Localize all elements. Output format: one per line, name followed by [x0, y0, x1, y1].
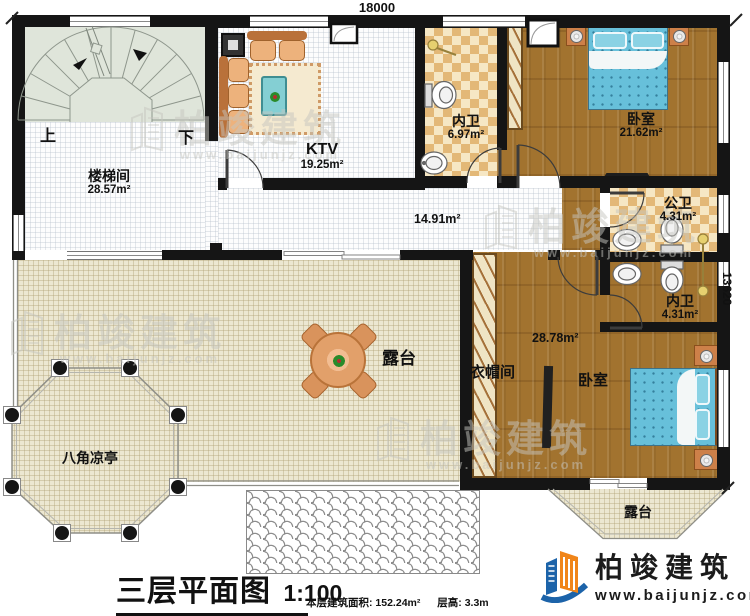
- wall-ktv-bath: [415, 15, 425, 190]
- wall-bath-top-bottom: [425, 176, 467, 188]
- window: [443, 16, 525, 27]
- bedroom1-bed: [588, 25, 668, 110]
- floor-height-note: 层高: 3.3m: [437, 597, 488, 609]
- dimension-right: 13620: [720, 272, 734, 305]
- pavilion-label: 八角凉亭: [62, 448, 118, 468]
- corridor-floor: [218, 188, 562, 250]
- ktv-tv-screen: [228, 40, 238, 50]
- nightstand: [694, 449, 718, 470]
- wall-bedroom2-bottom-b: [647, 478, 717, 490]
- brand-name: 柏竣建筑: [595, 546, 750, 586]
- sofa-back-top: [247, 31, 307, 40]
- wall-bed1-bottom-b: [560, 176, 717, 188]
- window: [718, 370, 729, 447]
- window: [718, 62, 729, 143]
- window: [67, 251, 162, 260]
- pillow: [695, 409, 710, 440]
- lamp-icon: [570, 30, 583, 43]
- room-name: 内卫: [416, 113, 516, 129]
- sofa-seat: [279, 40, 305, 61]
- bedroom2-area-label: 28.78m²: [532, 331, 579, 345]
- room-area: 28.57m²: [59, 184, 159, 197]
- room-label-bedroom1: 卧室 21.62m²: [591, 111, 691, 140]
- room-name: 卧室: [591, 111, 691, 127]
- round-table: [310, 332, 366, 388]
- lower-roof-texture: [246, 490, 480, 574]
- wall-bath-divider: [600, 252, 718, 262]
- wall-bedroom2-bottom-a: [460, 478, 590, 490]
- pillow: [631, 32, 664, 49]
- wall-ktv-bottom-a: [218, 178, 227, 190]
- brand-text: 柏竣建筑 www.baijunjz.com: [595, 546, 750, 604]
- stair-up-label: 上: [40, 122, 56, 146]
- ktv-coffee-table: [261, 76, 287, 116]
- wall-bath-block-left-a: [600, 188, 610, 193]
- lamp-icon: [673, 30, 686, 43]
- room-label-ktv: KTV 19.25m²: [272, 141, 372, 173]
- lamp-icon: [700, 454, 713, 467]
- ktv-tv: [221, 33, 245, 57]
- bedroom2-bed: [630, 368, 718, 446]
- window: [70, 16, 150, 27]
- bath-top-floor: [425, 27, 497, 176]
- room-name: 楼梯间: [59, 168, 159, 184]
- sofa-seat: [228, 84, 249, 108]
- bedroom2-name-label: 卧室: [578, 369, 608, 390]
- bed-sheet-fold: [677, 369, 695, 445]
- window: [250, 16, 328, 27]
- table-decor: [270, 92, 280, 102]
- room-area: 21.62m²: [591, 127, 691, 140]
- room-label-stair: 楼梯间 28.57m²: [59, 168, 159, 197]
- room-area: 4.31m²: [628, 211, 728, 224]
- room-area: 19.25m²: [272, 159, 372, 172]
- nightstand: [694, 345, 718, 366]
- corridor-area-label: 14.91m²: [414, 212, 461, 226]
- dimension-top: 18000: [335, 0, 419, 15]
- terrace-small-label: 露台: [624, 502, 652, 522]
- entry-wood-floor: [562, 188, 600, 250]
- window: [13, 215, 24, 251]
- stair-down-label: 下: [178, 124, 194, 148]
- nightstand: [566, 25, 586, 46]
- room-label-bath-lower: 内卫 4.31m²: [630, 293, 730, 322]
- room-name: 公卫: [628, 195, 728, 211]
- table-plant: [333, 355, 345, 367]
- brand-url: www.baijunjz.com: [595, 587, 750, 604]
- floor-area-note: 本层建筑面积: 152.24m²: [306, 597, 420, 609]
- wall-bath-lower-bottom: [600, 322, 718, 332]
- room-name: 内卫: [630, 293, 730, 309]
- sofa-seat: [228, 110, 249, 134]
- wall-ktv-bottom-b: [263, 178, 415, 190]
- brand-logo: 柏竣建筑 www.baijunjz.com: [540, 546, 750, 604]
- wall-stair-ktv: [205, 15, 218, 141]
- plan-title: 三层平面图: [116, 575, 271, 608]
- cloakroom-label: 衣帽间: [470, 361, 515, 382]
- floor-plan-canvas: 柏竣建筑 www.baijunjz.com 柏竣建筑 www.baijunjz.…: [0, 0, 750, 616]
- pillow: [695, 374, 710, 405]
- wall-corridor-bottom-a: [162, 250, 282, 260]
- sofa-seat: [250, 40, 276, 61]
- wall-corridor-bottom-c: [548, 250, 560, 260]
- terrace-table-set: [304, 326, 372, 394]
- stair-corridor-gap-floor: [205, 141, 218, 250]
- bed-sheet-fold: [589, 51, 667, 69]
- sofa-back-left: [219, 56, 228, 138]
- sofa-seat: [228, 58, 249, 82]
- lamp-icon: [700, 350, 713, 363]
- room-label-public-bath: 公卫 4.31m²: [628, 195, 728, 224]
- pillow: [593, 32, 627, 49]
- terrace-main-label: 露台: [382, 344, 416, 369]
- nightstand: [669, 25, 689, 46]
- room-name: KTV: [272, 141, 372, 159]
- room-area: 4.31m²: [630, 309, 730, 322]
- room-label-bath-top: 内卫 6.97m²: [416, 113, 516, 142]
- room-area: 6.97m²: [416, 129, 516, 142]
- wall-bed1-bottom-a: [497, 176, 518, 188]
- title-notes: 本层建筑面积: 152.24m² 层高: 3.3m: [306, 595, 489, 610]
- brand-logo-icon: [540, 547, 588, 603]
